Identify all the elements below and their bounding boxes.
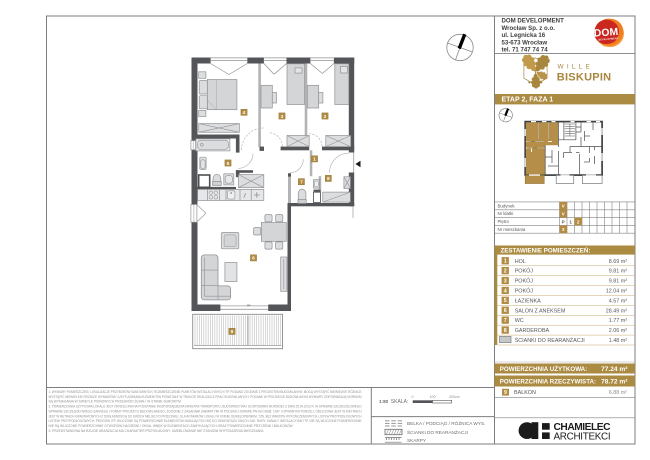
svg-text:7: 7 [504,318,507,324]
svg-text:BELKA / PODCIĄG / RÓŻNICA WYS.: BELKA / PODCIĄG / RÓŻNICA WYS. [407,420,485,426]
svg-text:3. PRZEDSTAWIONA NA RZUCIE ARA: 3. PRZEDSTAWIONA NA RZUCIE ARANŻACJA MA … [49,428,265,433]
svg-text:POWIERZCHNIA RZECZYWISTA:: POWIERZCHNIA RZECZYWISTA: [500,379,596,386]
svg-text:2: 2 [324,114,327,120]
svg-text:2: 2 [504,269,507,275]
svg-text:SKARPY: SKARPY [407,438,427,443]
svg-text:NIE SĄ WLICZONE POWIERZCHNIE O: NIE SĄ WLICZONE POWIERZCHNIE OTWORÓW NA … [49,423,294,428]
svg-text:Budynek: Budynek [498,203,516,208]
svg-text:SALON Z ANEKSEM: SALON Z ANEKSEM [515,308,566,314]
svg-text:POWIERZCHNIA UŻYTKOWA:: POWIERZCHNIA UŻYTKOWA: [500,366,587,373]
svg-text:2: 2 [577,219,580,224]
svg-text:1: 1 [569,219,572,224]
svg-text:ŁAZIENKA: ŁAZIENKA [515,298,541,304]
svg-text:WILLE: WILLE [558,64,594,71]
svg-text:BALKON: BALKON [514,390,536,396]
svg-text:DOM DEVELOPMENT: DOM DEVELOPMENT [502,18,565,25]
svg-text:9.81 m²: 9.81 m² [609,269,627,275]
svg-text:100: 100 [430,395,436,399]
svg-text:28.49 m²: 28.49 m² [606,308,627,314]
svg-text:9.81 m²: 9.81 m² [609,279,627,285]
svg-text:ARCHITEKCI: ARCHITEKCI [554,432,611,443]
svg-text:1: 1 [313,157,316,163]
svg-text:tel. 71 747 74 74: tel. 71 747 74 74 [502,47,549,54]
svg-text:ŚCIANKI DO REARANŻACJI: ŚCIANKI DO REARANŻACJI [407,428,468,435]
svg-text:Wrocław Sp. z o.o.: Wrocław Sp. z o.o. [502,25,556,32]
svg-text:6: 6 [252,256,255,262]
svg-text:5: 5 [227,161,230,167]
svg-text:Nr mieszkania: Nr mieszkania [498,227,526,232]
svg-text:WYSTĄPIĆ NIEWIELKIE RÓŻNICE WY: WYSTĄPIĆ NIEWIELKIE RÓŻNICE WYMIARÓW I U… [49,394,362,399]
svg-text:POKÓJ: POKÓJ [515,268,534,275]
svg-text:8: 8 [327,176,330,182]
svg-text:4: 4 [504,288,507,294]
svg-text:P: P [562,219,565,224]
svg-text:POKÓJ: POKÓJ [515,288,534,295]
svg-text:2. POWIERZCHNIA UŻYTKOWA LOKAL: 2. POWIERZCHNIA UŻYTKOWA LOKALU JEST OKR… [49,404,362,409]
svg-text:3: 3 [562,227,565,232]
svg-text:1. WYMIARY POMIESZCZEŃ, LOKALI: 1. WYMIARY POMIESZCZEŃ, LOKALIZACJE PRZY… [49,389,363,394]
svg-text:POKÓJ: POKÓJ [515,278,534,285]
svg-text:ul. Legnicka 16: ul. Legnicka 16 [502,32,546,39]
svg-text:1.48 m²: 1.48 m² [609,338,627,344]
svg-text:ZESTAWIENIE POMIESZCZEŃ:: ZESTAWIENIE POMIESZCZEŃ: [501,246,591,254]
svg-text:ŚCIANKI DO REARANŻACJI: ŚCIANKI DO REARANŻACJI [515,336,585,344]
svg-text:78.72 m²: 78.72 m² [601,379,628,386]
svg-text:Nr klatki: Nr klatki [498,211,514,216]
svg-text:LISTEW PRZYPODŁOGOWYCH, PROGÓW: LISTEW PRZYPODŁOGOWYCH, PROGÓW ITP. WLIC… [49,418,363,423]
svg-text:0: 0 [412,395,414,399]
svg-text:3: 3 [281,114,284,120]
svg-text:1: 1 [504,259,507,265]
svg-text:1:80: 1:80 [379,399,389,404]
svg-text:ETAP 2, FAZA 1: ETAP 2, FAZA 1 [502,97,554,104]
svg-text:6: 6 [504,308,507,314]
svg-text:4.57 m²: 4.57 m² [609,298,627,304]
svg-text:SPRAWIE SZCZEGÓŁOWEGO ZAKRESU: SPRAWIE SZCZEGÓŁOWEGO ZAKRESU I FORMY PR… [49,408,363,413]
svg-text:BISKUPIN: BISKUPIN [557,72,612,84]
svg-text:Piętro: Piętro [498,219,510,224]
svg-text:SĄ WYMAGANIA W ŚWIETLE PIONOWY: SĄ WYMAGANIA W ŚWIETLE PIONOWYCH PRZEGRÓ… [49,399,182,404]
svg-text:9: 9 [504,390,507,396]
svg-text:6.88 m²: 6.88 m² [609,390,627,396]
svg-text:4: 4 [243,110,246,116]
svg-text:5: 5 [504,298,507,304]
svg-text:9: 9 [231,329,234,335]
svg-text:200cm: 200cm [449,395,460,399]
svg-text:7: 7 [300,180,303,186]
svg-text:SKALA:: SKALA: [391,399,409,405]
svg-text:53-673 Wrocław: 53-673 Wrocław [502,39,548,46]
svg-text:WC: WC [515,318,524,324]
svg-text:JEST W METRACH KWADRATOWYCH Z: JEST W METRACH KWADRATOWYCH Z DOKŁADNOŚC… [49,413,363,418]
svg-text:HOL: HOL [515,259,526,265]
svg-text:GARDEROBA: GARDEROBA [515,328,550,334]
svg-text:77.24 m²: 77.24 m² [601,366,628,373]
svg-text:8: 8 [504,328,507,334]
svg-text:3: 3 [504,278,507,284]
svg-text:8.69 m²: 8.69 m² [609,259,627,265]
svg-text:2.06 m²: 2.06 m² [609,328,627,334]
svg-text:12.04 m²: 12.04 m² [606,289,627,295]
svg-text:1.77 m²: 1.77 m² [609,318,627,324]
